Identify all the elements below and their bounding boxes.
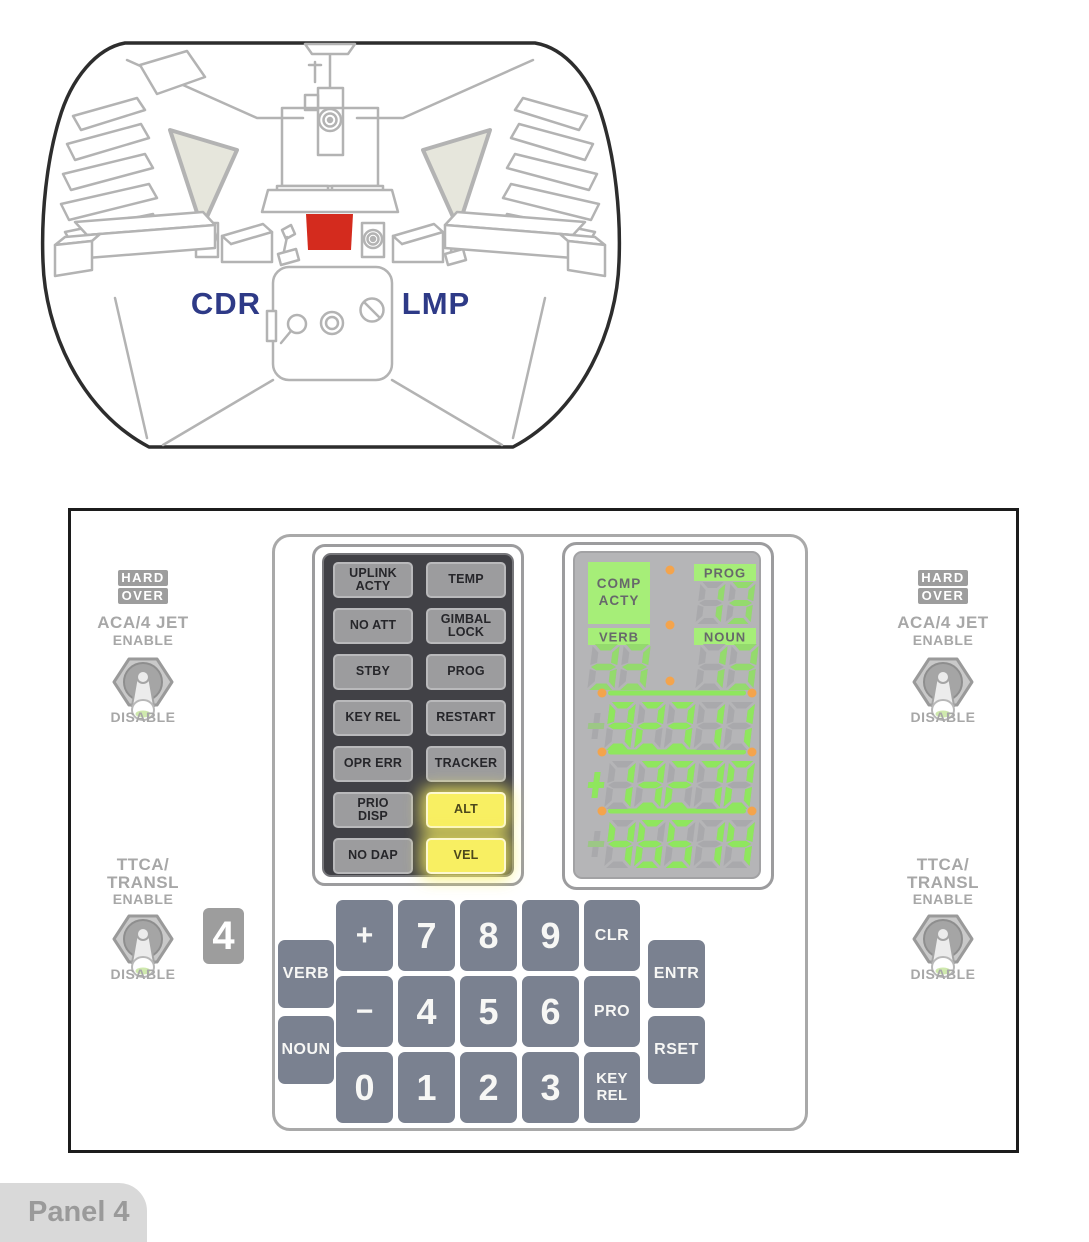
rset-key[interactable]: RSET — [648, 1016, 705, 1084]
right-aca-jet-enable-label: ENABLE — [881, 633, 1005, 648]
orange-dot — [598, 689, 607, 698]
orange-dot — [748, 807, 757, 816]
hatch-center-knob — [321, 312, 343, 334]
comp-acty-text: COMP — [597, 576, 642, 591]
hard-box: HARD — [118, 570, 168, 586]
left-aca-jet-title: ACA/4 JET — [81, 614, 205, 632]
zero-key[interactable]: 0 — [336, 1052, 393, 1123]
left-ttca-sub: TRANSL — [81, 874, 205, 892]
warning-light-no-att: NO ATT — [333, 608, 413, 644]
left-aca-jet-enable-label: ENABLE — [81, 633, 205, 648]
warning-light-prog: PROG — [426, 654, 506, 690]
panel-tag: Panel 4 — [0, 1183, 147, 1242]
warning-light-restart: RESTART — [426, 700, 506, 736]
four-key[interactable]: 4 — [398, 976, 455, 1047]
center-console-top — [262, 190, 398, 212]
warning-light-gimbal-lock: GIMBAL LOCK — [426, 608, 506, 644]
warning-light-no-dap: NO DAP — [333, 838, 413, 874]
noun-key[interactable]: NOUN — [278, 1016, 334, 1084]
warning-light-alt: ALT — [426, 792, 506, 828]
left-ttca-disable-label: DISABLE — [81, 967, 205, 982]
left-ttca-title: TTCA/ — [81, 856, 205, 874]
warning-lights-panel: UPLINK ACTYTEMPNO ATTGIMBAL LOCKSTBYPROG… — [322, 553, 514, 877]
warning-light-uplink-acty: UPLINK ACTY — [333, 562, 413, 598]
eight-key[interactable]: 8 — [460, 900, 517, 971]
verb-key[interactable]: VERB — [278, 940, 334, 1008]
orange-dot — [748, 748, 757, 757]
warning-light-key-rel: KEY REL — [333, 700, 413, 736]
left-hardover-label: HARD OVER — [81, 570, 205, 604]
orange-dot — [598, 748, 607, 757]
right-ttca-disable-label: DISABLE — [881, 967, 1005, 982]
orange-dot — [748, 689, 757, 698]
key-rel-key[interactable]: KEY REL — [584, 1052, 640, 1123]
warning-light-stby: STBY — [333, 654, 413, 690]
three-key[interactable]: 3 — [522, 1052, 579, 1123]
warning-light-prio-disp: PRIO DISP — [333, 792, 413, 828]
orange-dot — [666, 677, 675, 686]
right-aca-jet-title: ACA/4 JET — [881, 614, 1005, 632]
page: CDR LMP HARD OVER ACA/4 JET ENABLE DISAB… — [0, 0, 1089, 1242]
clr-key[interactable]: CLR — [584, 900, 640, 971]
warning-light-temp: TEMP — [426, 562, 506, 598]
right-hardover-label: HARD OVER — [881, 570, 1005, 604]
register-separator — [608, 691, 746, 696]
noun-label-text: NOUN — [704, 630, 746, 645]
warning-light-tracker: TRACKER — [426, 746, 506, 782]
lmp-label: LMP — [402, 286, 470, 321]
docking-notch — [305, 44, 355, 54]
orange-dot — [598, 807, 607, 816]
seven-key[interactable]: 7 — [398, 900, 455, 971]
panel4-location-highlight — [306, 214, 353, 250]
warning-light-opr-err: OPR ERR — [333, 746, 413, 782]
one-key[interactable]: 1 — [398, 1052, 455, 1123]
entr-key[interactable]: ENTR — [648, 940, 705, 1008]
panel-number-badge: 4 — [203, 908, 244, 964]
prog-label-text: PROG — [704, 566, 746, 581]
left-aca-jet-disable-label: DISABLE — [81, 710, 205, 725]
two-key[interactable]: 2 — [460, 1052, 517, 1123]
register-separator — [608, 809, 746, 814]
cdr-label: CDR — [191, 286, 261, 321]
over-box: OVER — [118, 588, 168, 604]
orange-dot — [666, 621, 675, 630]
minus-key[interactable]: − — [336, 976, 393, 1047]
plus-key[interactable]: + — [336, 900, 393, 971]
comp-acty-text: ACTY — [599, 593, 640, 608]
orange-dot — [666, 566, 675, 575]
cockpit-locator-diagram: CDR LMP — [35, 8, 625, 453]
hard-box: HARD — [918, 570, 968, 586]
warning-light-vel: VEL — [426, 838, 506, 874]
nine-key[interactable]: 9 — [522, 900, 579, 971]
panel-tag-label: Panel 4 — [0, 1183, 147, 1229]
pro-key[interactable]: PRO — [584, 976, 640, 1047]
right-ttca-sub: TRANSL — [881, 874, 1005, 892]
verb-label-text: VERB — [599, 630, 639, 645]
five-key[interactable]: 5 — [460, 976, 517, 1047]
right-ttca-title: TTCA/ — [881, 856, 1005, 874]
over-box: OVER — [918, 588, 968, 604]
six-key[interactable]: 6 — [522, 976, 579, 1047]
dsky-display: COMPACTYPROGVERBNOUN — [562, 542, 774, 890]
register-separator — [608, 750, 746, 755]
right-aca-jet-disable-label: DISABLE — [881, 710, 1005, 725]
